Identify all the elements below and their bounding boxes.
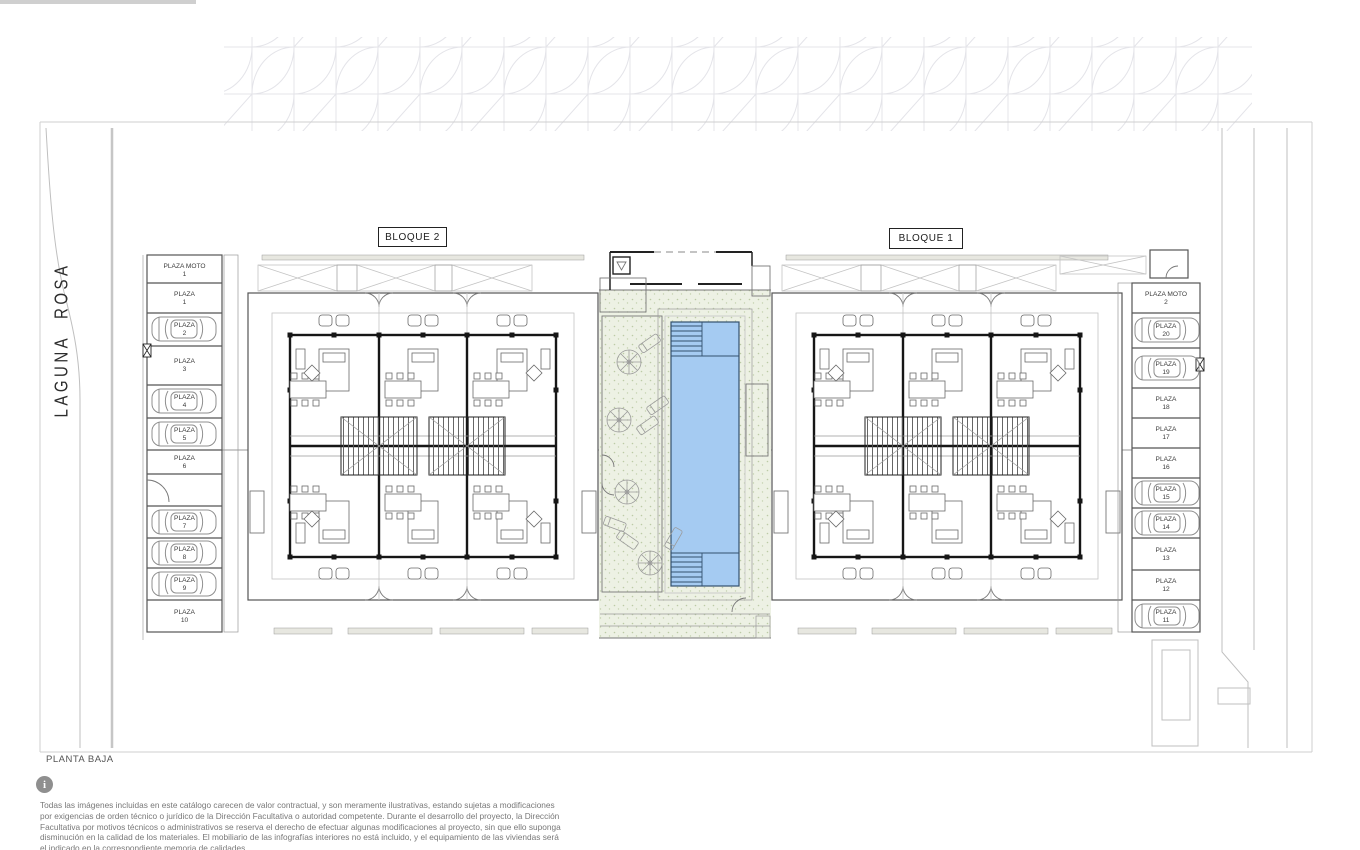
parking-slot-right-20: PLAZA20 [1132, 323, 1200, 339]
parking-slot-right-11: PLAZA11 [1132, 609, 1200, 625]
parking-slot-left-10: PLAZA10 [147, 609, 222, 625]
pool [658, 309, 752, 600]
parking-slot-left-5: PLAZA5 [147, 427, 222, 443]
parking-slot-right-12: PLAZA12 [1132, 578, 1200, 594]
parking-slot-left-9: PLAZA9 [147, 577, 222, 593]
parking-slot-left-2: PLAZA2 [147, 322, 222, 338]
street-left [46, 128, 143, 748]
parking-slot-right-19: PLAZA19 [1132, 361, 1200, 377]
parking-slot-right-13: PLAZA13 [1132, 547, 1200, 563]
parking-slot-right-17: PLAZA17 [1132, 426, 1200, 442]
elevator [613, 257, 630, 274]
parking-slot-right-moto-2: PLAZA MOTO2 [1132, 291, 1200, 307]
block-1-label: BLOQUE 1 [889, 228, 963, 249]
disclaimer-text: Todas las imágenes incluidas en este cat… [40, 800, 565, 850]
parking-slot-right-14: PLAZA14 [1132, 516, 1200, 532]
block-2-plan [248, 255, 598, 634]
block-1-plan [772, 255, 1122, 634]
info-icon: i [36, 776, 53, 793]
parking-slot-right-16: PLAZA16 [1132, 456, 1200, 472]
floor-label: PLANTA BAJA [46, 754, 114, 765]
parking-slot-right-18: PLAZA18 [1132, 396, 1200, 412]
parking-slot-left-6: PLAZA6 [147, 455, 222, 471]
parking-left [143, 255, 238, 632]
parking-slot-left-7: PLAZA7 [147, 515, 222, 531]
parking-slot-left-3: PLAZA3 [147, 358, 222, 374]
block-2-label: BLOQUE 2 [378, 227, 447, 247]
parking-slot-right-15: PLAZA15 [1132, 486, 1200, 502]
parking-slot-left-4: PLAZA4 [147, 394, 222, 410]
street-name-label: LAGUNA ROSA [52, 262, 72, 417]
parking-slot-left-1: PLAZA1 [147, 291, 222, 307]
decorative-pattern [224, 37, 1252, 131]
parking-slot-left-8: PLAZA8 [147, 546, 222, 562]
site-plan-drawing [0, 0, 1360, 850]
patio [599, 252, 771, 638]
catalog-page: LAGUNA ROSA BLOQUE 2 BLOQUE 1 PLAZA MOTO… [0, 0, 1360, 850]
utility-room [1150, 250, 1188, 278]
parking-slot-left-moto-1: PLAZA MOTO1 [147, 263, 222, 279]
